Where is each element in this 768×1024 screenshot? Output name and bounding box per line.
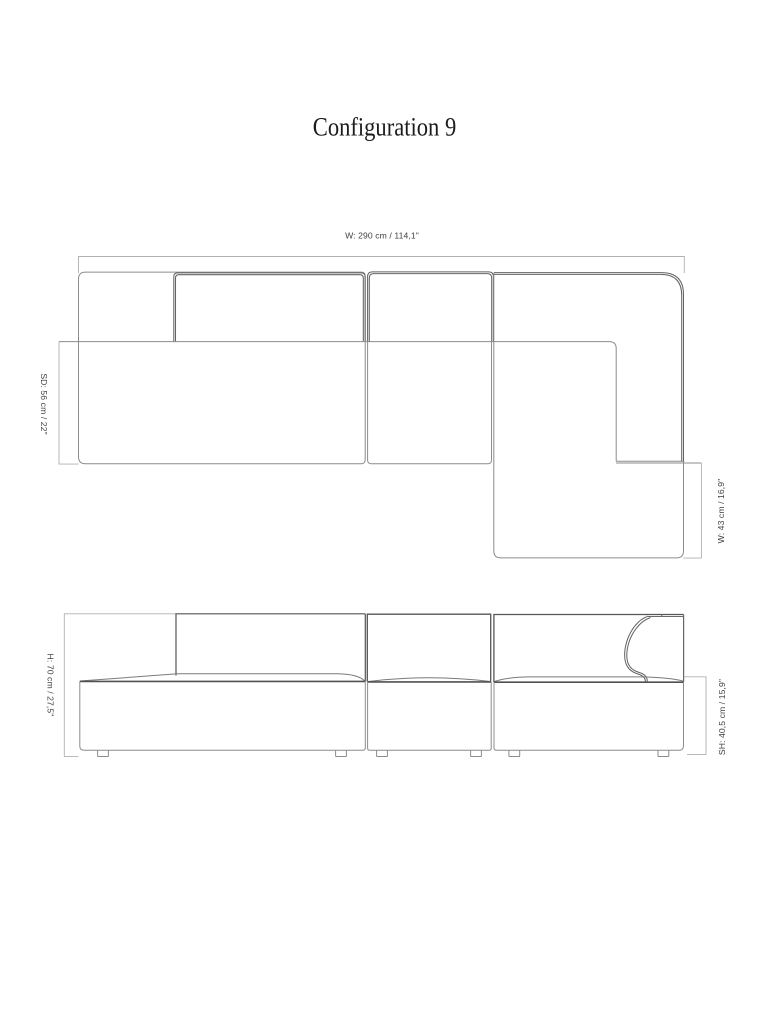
- svg-text:H: 70 cm / 27,5": H: 70 cm / 27,5": [46, 654, 56, 717]
- svg-text:SH: 40,5 cm / 15,9": SH: 40,5 cm / 15,9": [717, 679, 727, 755]
- svg-text:W: 43 cm / 16,9": W: 43 cm / 16,9": [716, 479, 726, 544]
- svg-text:W: 290 cm / 114,1": W: 290 cm / 114,1": [345, 231, 419, 241]
- svg-text:Configuration 9: Configuration 9: [313, 113, 456, 142]
- svg-text:SD: 56 cm / 22": SD: 56 cm / 22": [39, 373, 49, 434]
